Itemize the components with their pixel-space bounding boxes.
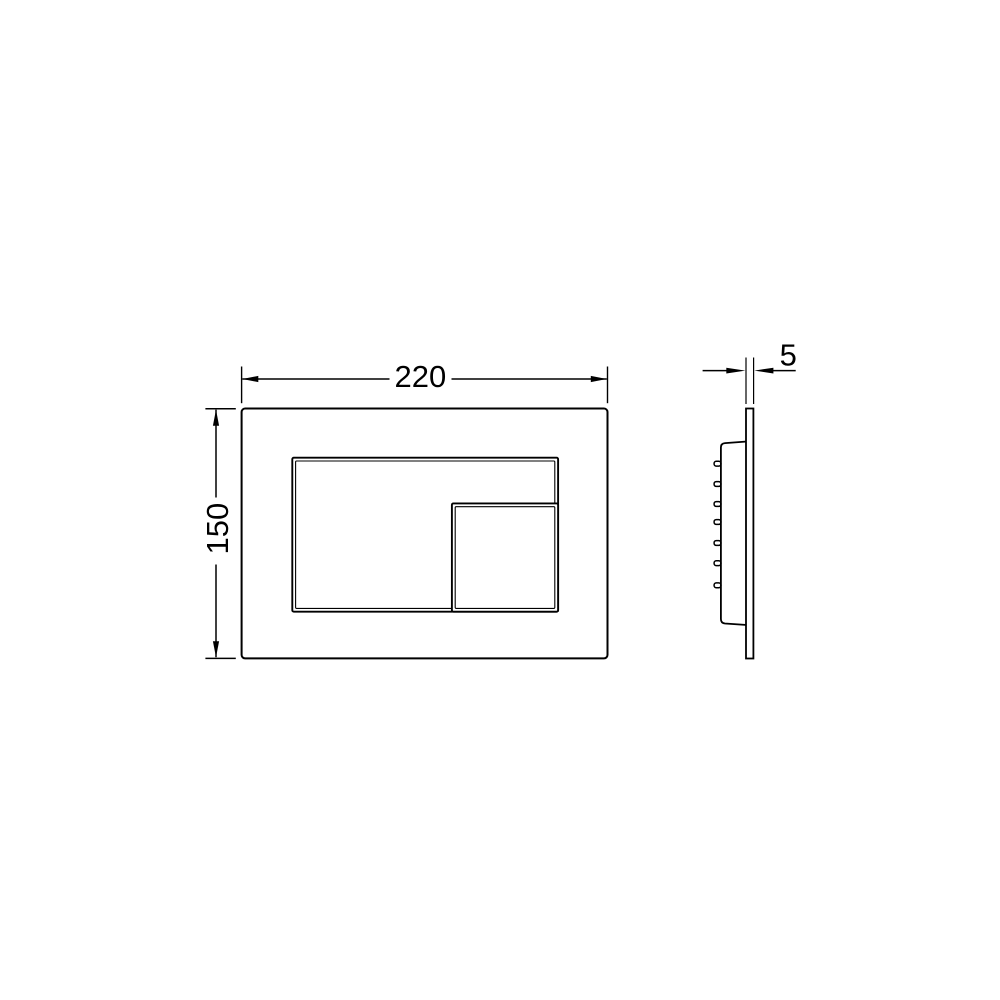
svg-text:5: 5	[780, 338, 797, 373]
svg-text:220: 220	[395, 359, 447, 394]
svg-text:150: 150	[200, 503, 235, 555]
